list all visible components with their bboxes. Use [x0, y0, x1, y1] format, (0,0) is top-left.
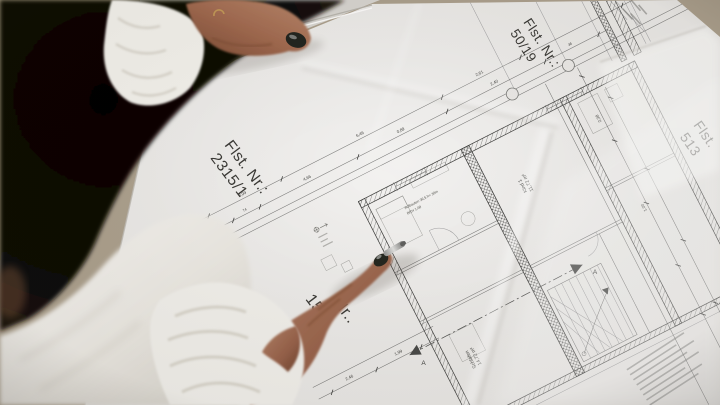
photo-scene: 3,99 6,46 2,61 74 4,66 0,89 2,40 36: [0, 0, 720, 405]
vignette: [0, 0, 720, 405]
photo-canvas: 3,99 6,46 2,61 74 4,66 0,89 2,40 36: [0, 0, 720, 405]
